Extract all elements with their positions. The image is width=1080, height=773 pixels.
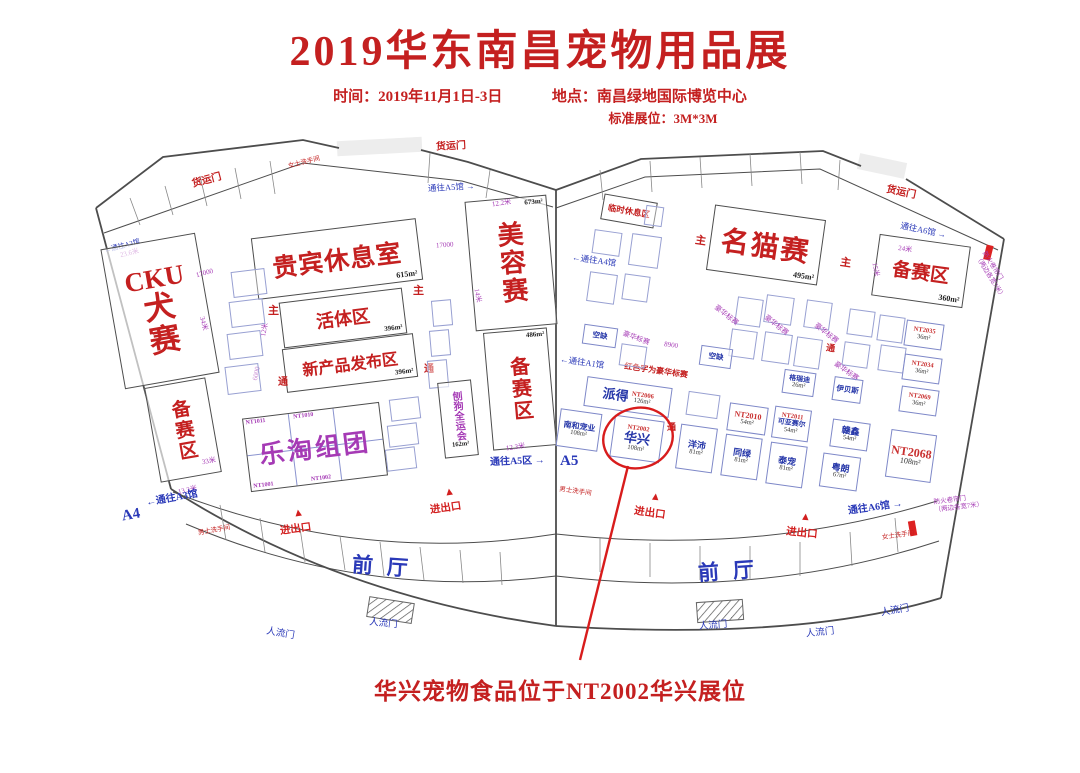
aisle-marker: 通 <box>825 343 835 354</box>
booth-name: 空缺 <box>592 331 608 341</box>
booth-nt2069: NT2069 36m² <box>898 385 939 416</box>
booth-size: 108m² <box>899 457 921 468</box>
entrance-ramp-center <box>696 599 743 622</box>
arrow-up-icon: ▲ <box>292 507 304 519</box>
booth-unlabeled <box>846 308 875 337</box>
booth-size: 67m² <box>832 472 846 480</box>
booth-yangpei: 洋沛 81m² <box>675 424 718 474</box>
booth-unlabeled <box>728 328 758 359</box>
booth-nt2034: NT2034 36m² <box>901 353 942 384</box>
area-grooming-prep: 备赛区 486m² <box>483 327 557 450</box>
booth-size: 81m² <box>734 457 748 465</box>
main-aisle-marker: 主 <box>268 306 279 318</box>
booth-unlabeled <box>229 298 266 328</box>
aisle-marker: 通 <box>278 378 288 389</box>
booth-unlabeled <box>876 314 905 343</box>
booth-size: 54m² <box>783 427 797 435</box>
booth-unlabeled <box>431 299 453 327</box>
grooming-size: 673m² <box>524 198 543 207</box>
booth-size: 81m² <box>689 449 703 457</box>
booth-size: 126m² <box>631 397 654 407</box>
front-hall-label: 前厅 <box>697 558 768 585</box>
aisle-marker: 通 <box>667 423 676 432</box>
cat-show-size: 495m² <box>792 271 814 282</box>
booth-ganxin: 赣鑫 54m² <box>829 418 871 451</box>
booth-unlabeled <box>841 341 870 368</box>
cargo-door-label: 货运门 <box>436 141 467 153</box>
booth-nanhe: 南和宠业 108m² <box>556 408 603 451</box>
booth-unlabeled <box>685 391 720 419</box>
booth-name: 空缺 <box>708 352 724 362</box>
booth-unlabeled <box>387 422 419 447</box>
booth-unlabeled <box>231 268 268 298</box>
area-grooming-contest: 美容赛 673m² <box>464 195 557 332</box>
main-aisle-marker: 主 <box>694 235 707 248</box>
booth-unlabeled <box>429 329 451 357</box>
booth-vacant: 空缺 <box>699 345 733 369</box>
arrow-up-icon: ▲ <box>649 491 661 503</box>
hall-a4-label: A4 <box>121 507 142 526</box>
hall-a5-label: A5 <box>560 454 578 470</box>
booth-name: 伊贝斯 <box>836 385 859 396</box>
booth-nt2035: NT2035 36m² <box>903 319 944 350</box>
booth-size: 36m² <box>911 400 925 408</box>
dim-label: 15米 <box>870 262 880 277</box>
booth-size: 54m² <box>842 435 856 443</box>
main-aisle-marker: 主 <box>839 257 852 270</box>
arrow-right-icon: → <box>889 498 903 511</box>
booth-unlabeled <box>224 363 261 395</box>
grooming-prep-label: 备赛区 <box>503 355 538 423</box>
booth-code: NT1011 <box>245 418 266 427</box>
cargo-door-gap-right <box>857 153 907 179</box>
live-area-size: 396m² <box>384 324 403 333</box>
arrow-right-icon: → <box>464 181 475 192</box>
booth-yuelang: 粤朗 67m² <box>819 453 861 492</box>
booth-keyasaier-nt2011: NT2011 可亚赛尔 54m² <box>771 406 812 443</box>
booth-size: 36m² <box>914 368 928 376</box>
grooming-label: 美容赛 <box>489 220 533 307</box>
booth-taichong: 泰宠 81m² <box>765 442 807 489</box>
booth-yibeisi: 伊贝斯 <box>831 376 863 404</box>
dog-games-label: 刨狗全运会 <box>448 390 468 441</box>
booth-unlabeled <box>644 205 665 227</box>
booth-unlabeled <box>734 296 764 327</box>
booth-size: 108m² <box>570 430 588 439</box>
booth-unlabeled <box>628 233 662 269</box>
booth-unlabeled <box>621 273 650 302</box>
booth-unlabeled <box>586 271 618 305</box>
booth-size: 54m² <box>740 419 754 427</box>
people-door-label: 人流门 <box>699 621 728 633</box>
arrow-up-icon: ▲ <box>443 486 455 498</box>
arrow-up-icon: ▲ <box>800 512 812 524</box>
booth-unlabeled <box>591 229 622 257</box>
dim-label: 17000 <box>436 241 454 250</box>
booth-code: NT1001 <box>253 481 274 490</box>
new-product-size: 396m² <box>395 367 414 376</box>
cku-prep-label: 备赛区 <box>164 397 202 464</box>
dog-games-size: 162m² <box>452 439 470 448</box>
vip-lounge-label: 贵宾休息室 <box>270 233 403 285</box>
booth-size: 108m² <box>627 444 645 453</box>
booth-nt2010: NT2010 54m² <box>726 402 769 435</box>
annotation-text: 华兴宠物食品位于NT2002华兴展位 <box>310 680 810 704</box>
booth-code: NT1002 <box>311 474 332 483</box>
booth-unlabeled <box>227 330 264 360</box>
area-cat-prep: 备赛区 360m² <box>871 234 971 308</box>
booth-tonglv: 同绿 81m² <box>720 434 762 481</box>
booth-size: 26m² <box>791 382 805 390</box>
arrow-right-icon: → <box>935 228 947 240</box>
booth-name: 派得 <box>602 387 630 404</box>
booth-unlabeled <box>385 446 417 471</box>
booth-code: NT1010 <box>293 412 314 421</box>
letao-group-label: 乐淘组团 <box>257 422 373 471</box>
live-area-label: 活体区 <box>315 302 372 334</box>
booth-huaxing-nt2002: NT2002 华兴 108m² <box>609 415 664 464</box>
booth-size: 36m² <box>916 334 930 342</box>
cargo-door-gap-left <box>337 137 423 156</box>
grooming-prep-size: 486m² <box>526 331 545 340</box>
cat-show-label: 名猫赛 <box>719 219 814 271</box>
floor-plan: 2019华东南昌宠物用品展 时间：2019年11月1日-3日 地点：南昌绿地国际… <box>0 0 1080 773</box>
dim-label: 14米 <box>472 288 482 303</box>
vip-lounge-size: 615m² <box>396 269 418 280</box>
booth-unlabeled <box>761 331 793 365</box>
booth-geruidi: 格瑞迪 26m² <box>781 369 816 397</box>
cat-prep-size: 360m² <box>938 294 960 305</box>
booth-size: 81m² <box>779 465 793 473</box>
booth-unlabeled <box>793 336 823 369</box>
booth-unlabeled <box>389 396 421 421</box>
passage-to-a5-zone: 通往A5区 → <box>490 456 545 468</box>
cat-prep-label: 备赛区 <box>891 254 951 289</box>
cku-line3: 赛 <box>147 322 183 359</box>
main-aisle-marker: 主 <box>413 286 424 298</box>
arrow-right-icon: → <box>532 455 545 466</box>
booth-nt2068: NT2068 108m² <box>885 429 937 483</box>
new-product-label: 新产品发布区 <box>301 345 399 381</box>
front-hall-label: 前厅 <box>351 554 422 581</box>
booth-unlabeled <box>619 343 648 368</box>
